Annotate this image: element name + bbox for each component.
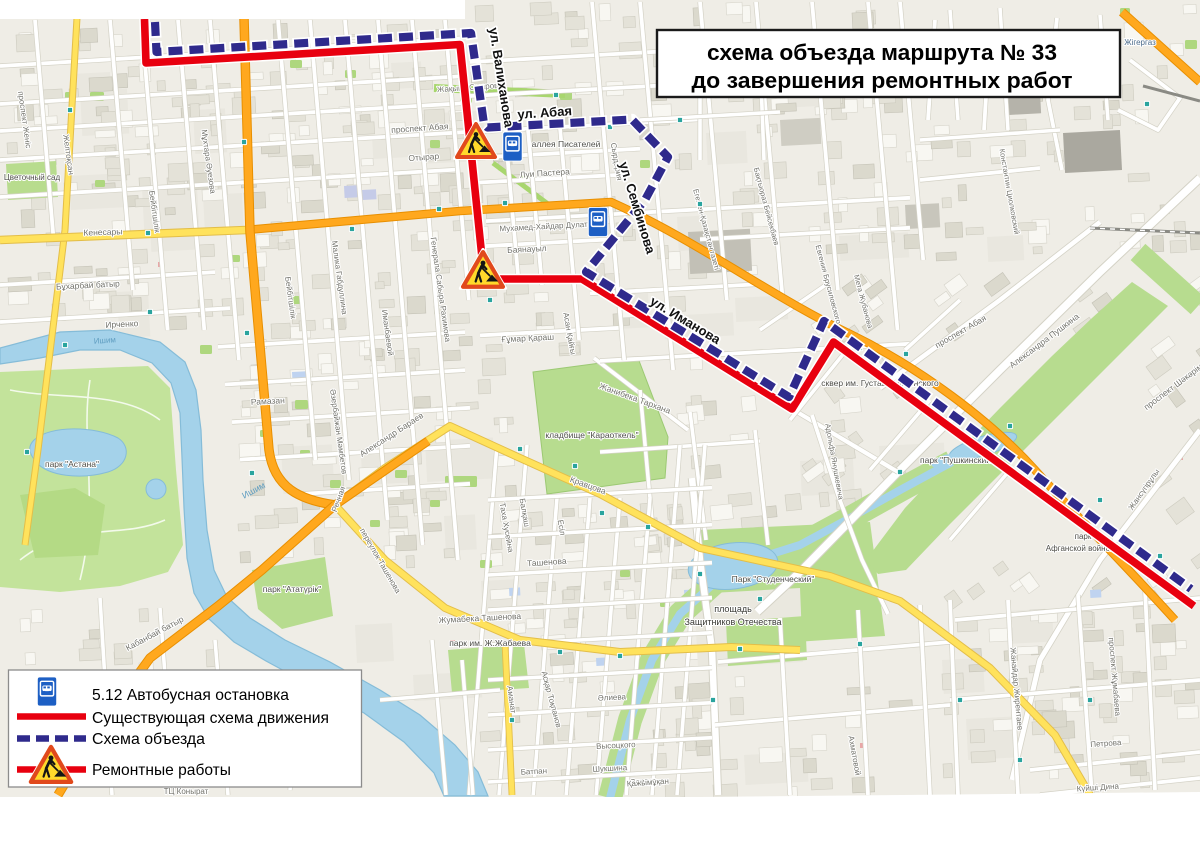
svg-text:Парк "Студенческий": Парк "Студенческий" bbox=[732, 574, 815, 584]
svg-text:ТЦ Конырат: ТЦ Конырат bbox=[164, 787, 209, 796]
svg-text:парк "Астана": парк "Астана" bbox=[45, 459, 99, 469]
svg-text:Жігергаз: Жігергаз bbox=[1124, 38, 1156, 47]
svg-text:парк "Ататүрік": парк "Ататүрік" bbox=[263, 584, 321, 594]
svg-text:Ремонтные работы: Ремонтные работы bbox=[92, 762, 231, 779]
svg-text:парк им. Ж.Жабаева: парк им. Ж.Жабаева bbox=[449, 638, 531, 648]
svg-text:5.12 Автобусная остановка: 5.12 Автобусная остановка bbox=[92, 687, 289, 704]
svg-text:площадь: площадь bbox=[714, 604, 752, 614]
svg-text:Цветочный сад: Цветочный сад bbox=[4, 173, 61, 182]
svg-text:Кенесары: Кенесары bbox=[83, 226, 122, 237]
svg-text:Ишим: Ишим bbox=[93, 335, 116, 346]
svg-text:Рамазан: Рамазан bbox=[251, 395, 286, 407]
svg-text:Схема объезда: Схема объезда bbox=[92, 731, 205, 748]
svg-text:Әлиева: Әлиева bbox=[598, 692, 627, 702]
svg-text:Батпан: Батпан bbox=[520, 766, 547, 776]
svg-text:до завершения ремонтных работ: до завершения ремонтных работ bbox=[692, 68, 1073, 93]
svg-text:Ирченко: Ирченко bbox=[105, 318, 139, 330]
svg-text:Существующая схема движения: Существующая схема движения bbox=[92, 710, 329, 727]
svg-text:схема объезда маршрута № 33: схема объезда маршрута № 33 bbox=[707, 40, 1057, 65]
svg-text:Баянауыл: Баянауыл bbox=[507, 243, 547, 255]
svg-text:Шукшина: Шукшина bbox=[592, 763, 628, 774]
svg-text:аллея Писателей: аллея Писателей bbox=[532, 139, 601, 149]
svg-text:кладбище "Караоткель": кладбище "Караоткель" bbox=[545, 430, 638, 440]
svg-text:Защитников Отечества: Защитников Отечества bbox=[684, 617, 781, 627]
